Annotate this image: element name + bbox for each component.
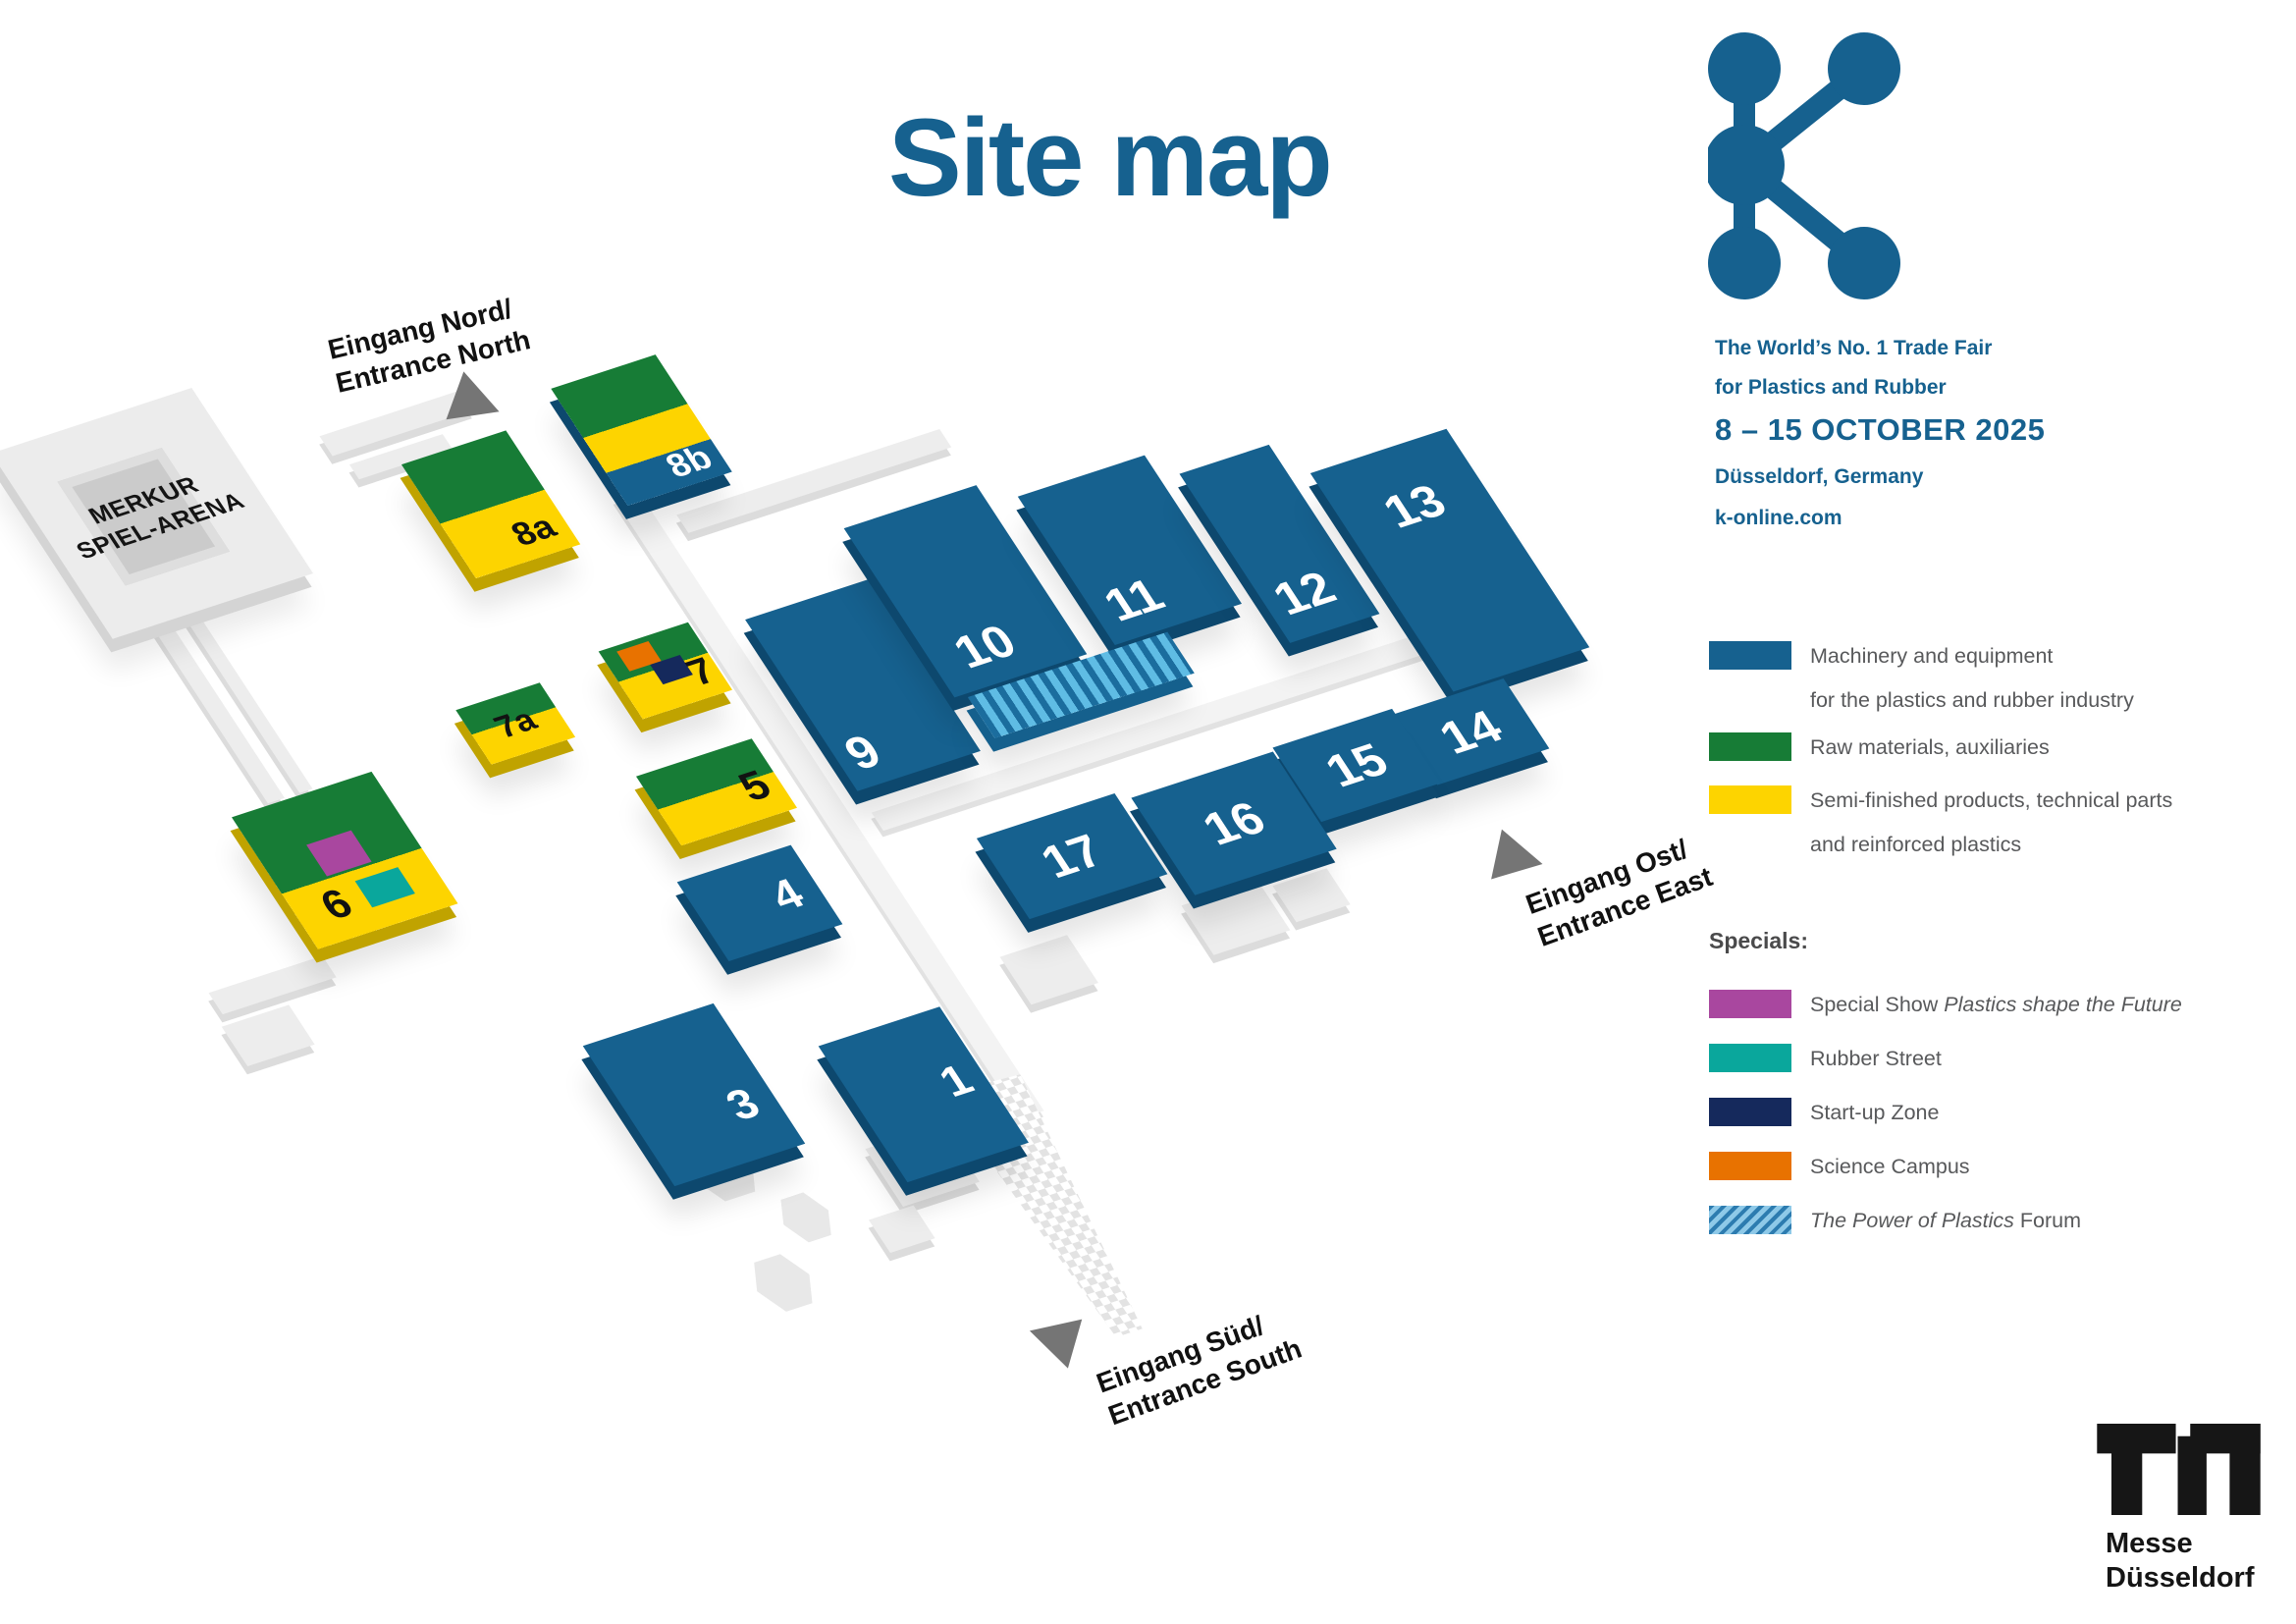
hall-label: 15 — [1317, 736, 1396, 794]
page-title: Site map — [888, 94, 1331, 221]
legend-label: Machinery and equipment — [1810, 634, 2134, 678]
hall-label: 9 — [836, 728, 889, 778]
entrance-north-arrow-icon — [447, 371, 508, 435]
legend-label: Science Campus — [1810, 1152, 1970, 1182]
legend-label: Start-up Zone — [1810, 1098, 1939, 1128]
hall-17: 17 — [977, 793, 1168, 919]
hall-4: 4 — [677, 845, 843, 961]
hall-label: 1 — [932, 1057, 981, 1104]
hall-5: 5 — [636, 738, 797, 845]
messe-logo-text-line2: Düsseldorf — [2106, 1564, 2254, 1593]
legend-row-science-campus: Science Campus — [1709, 1152, 1970, 1182]
event-location: Düsseldorf, Germany — [1715, 465, 1923, 489]
hall-label: 5 — [731, 764, 777, 808]
legend-label: Semi-finished products, technical parts — [1810, 779, 2172, 823]
entrance-east-arrow-icon — [1491, 830, 1548, 890]
entrance-south-arrow-icon — [1023, 1306, 1082, 1368]
building-block — [222, 1004, 315, 1066]
hall-label: 8b — [660, 441, 719, 483]
building-block — [1000, 935, 1098, 1004]
legend-row-power-of-plastics: The Power of Plastics Forum — [1709, 1206, 2081, 1236]
legend-row-machinery: Machinery and equipmentfor the plastics … — [1709, 641, 2134, 723]
legend-row-rubber-street: Rubber Street — [1709, 1044, 1942, 1074]
arena-label: MERKURSPIEL-ARENA — [0, 388, 313, 639]
specials-title: Specials: — [1709, 928, 1808, 954]
hall-label: 13 — [1375, 477, 1454, 535]
legend-label: for the plastics and rubber industry — [1810, 678, 2134, 723]
event-date: 8 – 15 OCTOBER 2025 — [1715, 412, 2045, 448]
hall-label: 7a — [489, 704, 543, 743]
website-link[interactable]: k-online.com — [1715, 507, 1842, 530]
legend-label: Raw materials, auxiliaries — [1810, 726, 2050, 770]
hall-label: 16 — [1195, 794, 1273, 852]
entrance-east-label: Eingang Ost/Entrance East — [1522, 827, 1717, 954]
entrance-north-label: Eingang Nord/Entrance North — [325, 289, 534, 401]
hall-13: 13 — [1310, 429, 1589, 692]
legend-row-raw-materials: Raw materials, auxiliaries — [1709, 732, 2050, 770]
legend-label: The Power of Plastics Forum — [1810, 1206, 2081, 1236]
brand-tagline-line1: The World’s No. 1 Trade Fair — [1715, 337, 1992, 360]
hall-label: 12 — [1264, 564, 1343, 622]
brand-tagline-line2: for Plastics and Rubber — [1715, 376, 1947, 400]
hall-7a: 7a — [455, 682, 575, 764]
legend-label: and reinforced plastics — [1810, 823, 2172, 867]
hall-label: 3 — [718, 1081, 767, 1127]
merkur-spiel-arena: MERKURSPIEL-ARENA — [0, 388, 313, 639]
legend-swatch-raw-materials — [1709, 732, 1791, 761]
legend-swatch-special-show — [1709, 990, 1791, 1018]
hexagon-pavilion — [769, 1188, 842, 1247]
messe-duesseldorf-logo-icon — [2094, 1424, 2264, 1515]
hall-8b: 8b — [551, 354, 732, 506]
legend-swatch-machinery — [1709, 641, 1791, 670]
rubber-street-area — [355, 867, 415, 907]
special-show-area — [306, 831, 372, 877]
legend-row-startup-zone: Start-up Zone — [1709, 1098, 1939, 1128]
legend-row-special-show: Special Show Plastics shape the Future — [1709, 990, 2182, 1020]
legend-swatch-semi-finished — [1709, 785, 1791, 814]
hexagon-pavilion — [740, 1249, 826, 1317]
site-map-page: Site map The World’s No. 1 Trade Fair fo… — [0, 0, 2296, 1624]
building-block — [869, 1206, 935, 1253]
building-block — [1272, 868, 1350, 922]
hall-label: 8a — [506, 510, 562, 552]
legend-swatch-rubber-street — [1709, 1044, 1791, 1072]
hall-label: 10 — [945, 618, 1024, 676]
legend-swatch-startup-zone — [1709, 1098, 1791, 1126]
hall-label: 6 — [314, 883, 360, 927]
hall-label: 4 — [762, 872, 811, 918]
legend-row-semi-finished: Semi-finished products, technical partsa… — [1709, 785, 2172, 867]
legend-label: Special Show Plastics shape the Future — [1810, 990, 2182, 1020]
legend-swatch-science-campus — [1709, 1152, 1791, 1180]
hall-label: 11 — [1095, 570, 1172, 627]
legend-swatch-power-of-plastics — [1709, 1206, 1791, 1234]
hall-label: 17 — [1033, 827, 1111, 885]
legend-label: Rubber Street — [1810, 1044, 1942, 1074]
k-fair-logo-icon — [1708, 27, 1904, 314]
hall-3: 3 — [583, 1003, 806, 1186]
messe-logo-text-line1: Messe — [2106, 1530, 2193, 1558]
walkway — [209, 955, 337, 1014]
hall-label: 14 — [1431, 703, 1510, 761]
